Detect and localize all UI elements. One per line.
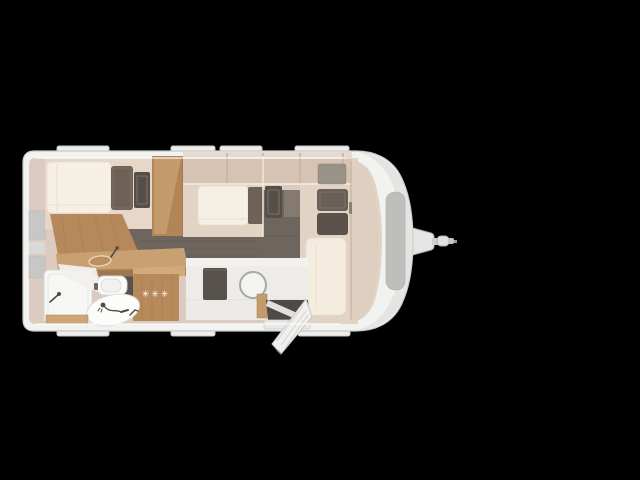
coupling-head bbox=[437, 236, 449, 246]
wall-cabinet bbox=[29, 256, 45, 278]
caravan-floorplan-scene: ✳✳✳ bbox=[0, 0, 640, 480]
locker-handle bbox=[349, 202, 352, 214]
lounge-mattress bbox=[306, 238, 346, 315]
door-jamb bbox=[257, 294, 267, 318]
refrigerator: ✳✳✳ bbox=[133, 266, 185, 321]
coupling-tip bbox=[448, 238, 454, 244]
rear-wall-cabinets bbox=[29, 211, 45, 278]
coupling-pin bbox=[454, 240, 457, 243]
seat-cushion bbox=[317, 213, 348, 235]
floorplan-svg: ✳✳✳ bbox=[0, 0, 640, 480]
tv-panel bbox=[134, 172, 150, 208]
pillow bbox=[111, 166, 133, 210]
flush-handle bbox=[94, 283, 98, 290]
freezer-stars-icon: ✳✳✳ bbox=[142, 290, 171, 300]
pillow bbox=[248, 187, 263, 224]
toilet-seat bbox=[101, 279, 121, 292]
dinette-table bbox=[203, 268, 227, 300]
wardrobe bbox=[152, 156, 183, 236]
storage-compartment bbox=[318, 164, 346, 184]
wooden-shelf bbox=[46, 315, 88, 324]
wall-cabinet bbox=[29, 211, 45, 239]
bench-backrest bbox=[186, 258, 308, 266]
gas-locker-hatch bbox=[386, 192, 405, 290]
wall-cabinet bbox=[29, 242, 45, 254]
